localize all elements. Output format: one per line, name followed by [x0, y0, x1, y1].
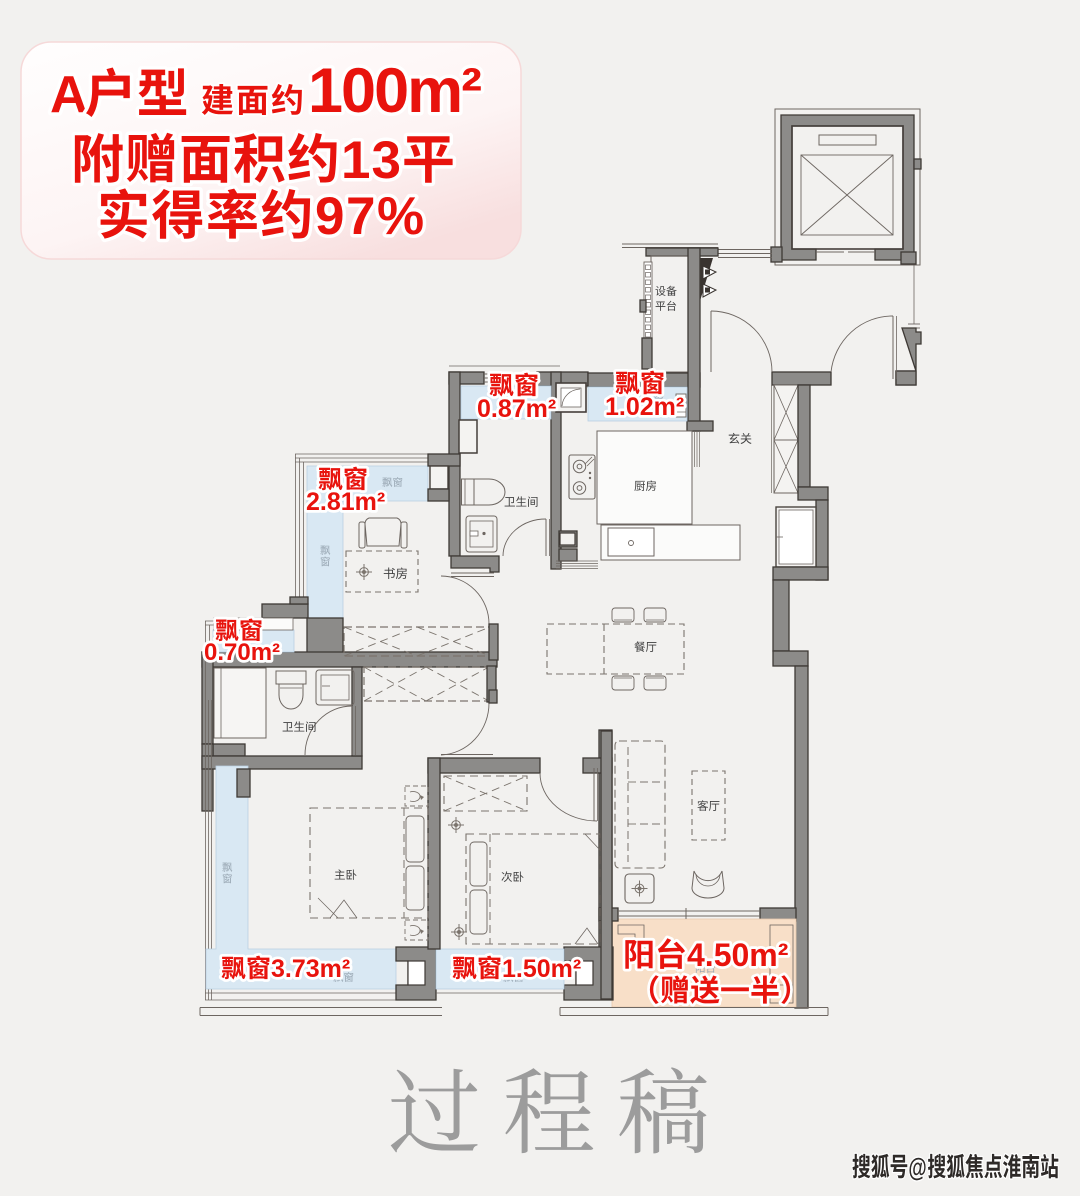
svg-text:3.73m²: 3.73m² [271, 955, 350, 983]
svg-text:0.70m²: 0.70m² [204, 639, 280, 666]
svg-text:2.81m²: 2.81m² [306, 488, 385, 516]
svg-text:@: @ [908, 1152, 926, 1182]
svg-text:1.02m²: 1.02m² [605, 393, 684, 421]
svg-text:0.87m²: 0.87m² [477, 395, 556, 423]
svg-text:A: A [50, 66, 88, 124]
svg-text:1.50m²: 1.50m² [502, 955, 581, 983]
svg-text:13: 13 [341, 131, 402, 190]
svg-text:4.50m²: 4.50m² [687, 937, 788, 973]
svg-text:97%: 97% [315, 187, 426, 246]
svg-text:100m²: 100m² [308, 56, 481, 126]
